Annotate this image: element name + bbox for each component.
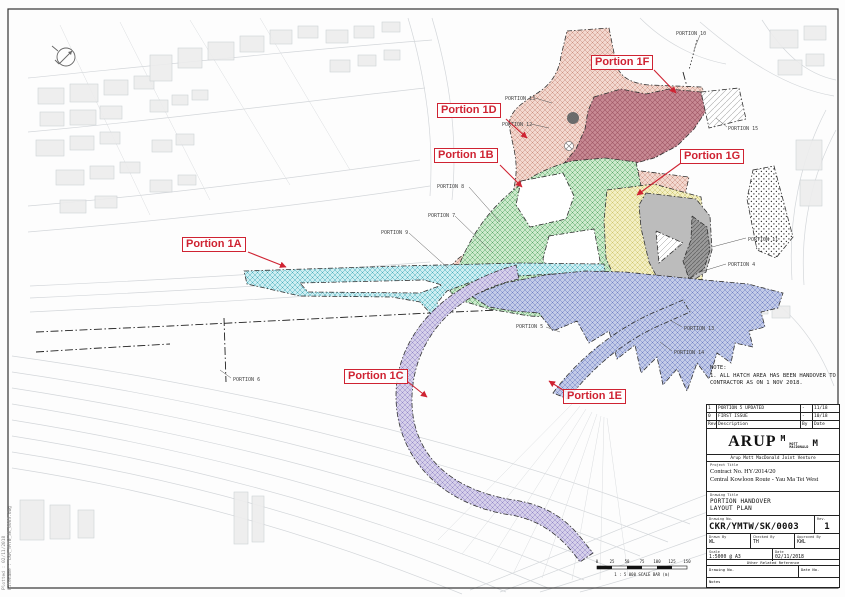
drawing-title-line1: PORTION HANDOVER [710, 498, 836, 506]
contract-number: Contract No. HY/2014/20 [710, 468, 836, 476]
portion-ref-label: PORTION 11 [748, 237, 778, 243]
drawing-title-line2: LAYOUT PLAN [710, 505, 836, 513]
portion-ref-label: PORTION 6 [233, 377, 260, 383]
rev-number: 1 [817, 522, 837, 532]
scale-date-block: Scale 1:5000 @ A3 Date 02/11/2018 [707, 549, 839, 560]
project-title-block: Project Title Contract No. HY/2014/20 Ce… [707, 462, 839, 492]
portion-1f-label: Portion 1F [591, 55, 653, 70]
tb-notes-label: Notes [707, 578, 839, 589]
arup-mott-macdonald-logo: ARUP M MOTT MACDONALD M [707, 429, 839, 454]
rev-cell: 10/18 [813, 413, 839, 421]
scale-tick-label: 25 [610, 559, 615, 564]
portion-ref-label: PORTION 4 [728, 262, 755, 268]
drawing-sheet: PORTION 10 PORTION 13 PORTION 12 PORTION… [0, 0, 845, 597]
plot-stamp: Plotted : 02/11/2018 Filename : CKR_YMTW… [2, 506, 14, 590]
ref-drawing-no-label: Drawing No. [707, 566, 799, 577]
portion-1b-label: Portion 1B [434, 148, 498, 163]
rev-cell: 0 [707, 413, 717, 421]
ref-date-no-label: Date No. [799, 566, 839, 577]
portion-1e-label: Portion 1E [563, 389, 626, 404]
portion-ref-label: PORTION 8 [437, 184, 464, 190]
rev-cell: PORTION 5 UPDATED [717, 405, 801, 413]
portion-ref-label: PORTION 13 [505, 96, 535, 102]
hatched-quad-area [701, 88, 746, 128]
rev-header: By [801, 421, 813, 429]
signoff-block: Drawn By WL Checked By TH Approved By KW… [707, 534, 839, 549]
portion-ref-label: PORTION 9 [381, 230, 408, 236]
rev-cell: 1 [707, 405, 717, 413]
project-name: Central Kowloon Route - Yau Ma Tei West [710, 476, 836, 484]
dotted-hatch-band [747, 166, 793, 258]
rev-header: Date [813, 421, 839, 429]
mott-m-icon: M [781, 434, 786, 443]
rev-cell: - [801, 405, 813, 413]
plot-stamp-line: Filename : CKR_YMTW_SK_0003.dwg [8, 506, 14, 590]
notes-title: NOTE: [710, 365, 842, 372]
rev-header: Description [717, 421, 801, 429]
rev-cell: 11/18 [813, 405, 839, 413]
portion-1d-label: Portion 1D [437, 103, 501, 118]
approved-by-value: KWL [797, 540, 837, 545]
scale-tick-label: 150 [683, 559, 691, 564]
scale-tick-label: 100 [653, 559, 661, 564]
rev-cell: FIRST ISSUE [717, 413, 801, 421]
portion-ref-label: PORTION 5 [516, 324, 543, 330]
arup-wordmark: ARUP [728, 433, 776, 451]
macdonald-m-icon: M [812, 439, 817, 449]
portion-1a-label: Portion 1A [182, 237, 246, 252]
map-structure-dot [567, 112, 579, 124]
revision-table: 1 PORTION 5 UPDATED - 11/18 0 FIRST ISSU… [707, 405, 839, 429]
scale-bar-caption: 1 : 5 000 SCALE BAR (m) [614, 572, 669, 577]
portion-ref-label: PORTION 10 [676, 31, 706, 37]
scale-tick-label: 0 [596, 559, 599, 564]
portion-1g-label: Portion 1G [680, 149, 744, 164]
note-line: CONTRACTOR AS ON 1 NOV 2018. [710, 380, 842, 387]
notes-block: NOTE: 1. ALL HATCH AREA HAS BEEN HANDOVE… [710, 365, 842, 387]
joint-venture-label: Arup Mott MacDonald Joint Venture [707, 454, 839, 462]
note-line: 1. ALL HATCH AREA HAS BEEN HANDOVER TO [710, 373, 842, 380]
macdonald-label: MACDONALD [789, 446, 808, 450]
drawing-number-block: Drawing No. CKR/YMTW/SK/0003 Rev. 1 [707, 516, 839, 534]
date-value: 02/11/2018 [775, 555, 837, 560]
scale-tick-label: 125 [668, 559, 676, 564]
portion-ref-label: PORTION 14 [674, 350, 704, 356]
portion-ref-label: PORTION 15 [728, 126, 758, 132]
map-cutout [516, 173, 574, 227]
checked-by-value: TH [753, 540, 792, 545]
title-block: 1 PORTION 5 UPDATED - 11/18 0 FIRST ISSU… [706, 404, 840, 588]
portion-1c-label: Portion 1C [344, 369, 408, 384]
portion-ref-label: PORTION 12 [502, 122, 532, 128]
rev-header: Rev [707, 421, 717, 429]
portion-ref-label: PORTION 13 [684, 326, 714, 332]
drawing-number: CKR/YMTW/SK/0003 [709, 522, 812, 532]
scale-tick-label: 75 [640, 559, 645, 564]
scale-tick-label: 50 [625, 559, 630, 564]
reference-row: Drawing No. Date No. [707, 566, 839, 578]
rev-cell: - [801, 413, 813, 421]
drawing-title-block: Drawing Title PORTION HANDOVER LAYOUT PL… [707, 492, 839, 516]
scale-bar: 0 25 50 75 100 125 150 1 : 5 000 SCALE B… [596, 559, 691, 577]
drawn-by-value: WL [709, 540, 748, 545]
scale-value: 1:5000 @ A3 [709, 555, 770, 560]
portion-ref-label: PORTION 7 [428, 213, 455, 219]
